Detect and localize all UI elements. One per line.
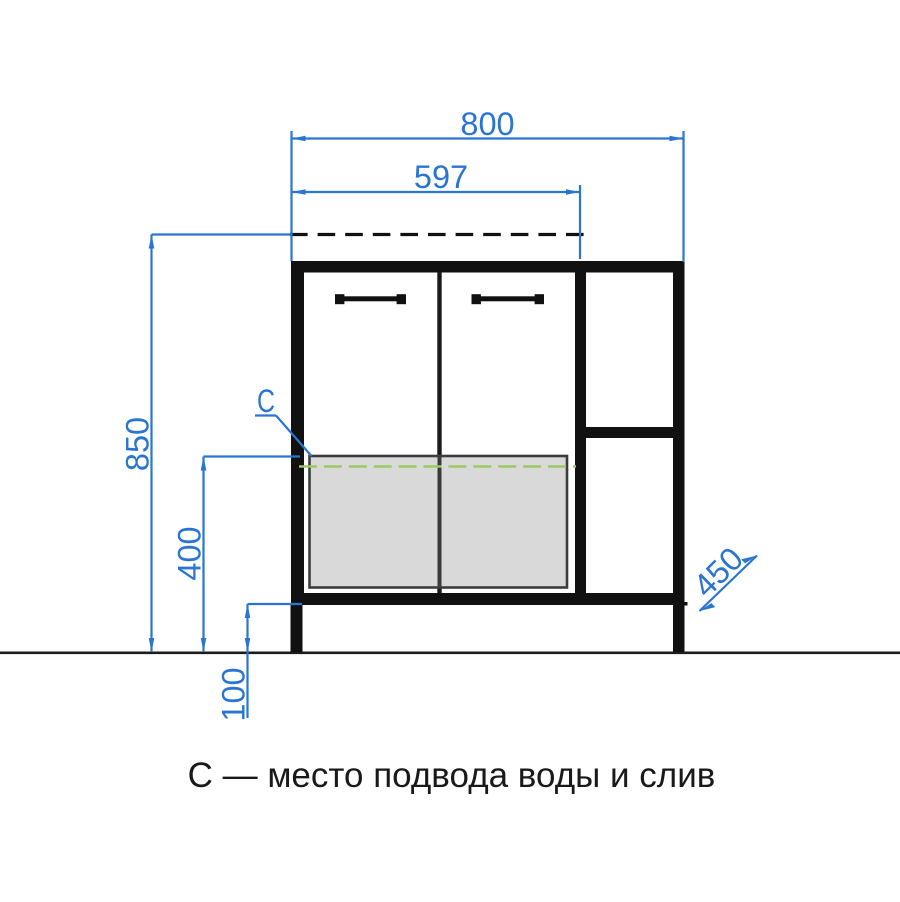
svg-text:800: 800	[460, 106, 514, 142]
svg-text:100: 100	[216, 667, 252, 721]
svg-text:597: 597	[414, 159, 468, 195]
svg-text:400: 400	[172, 526, 208, 580]
svg-text:С — место подвода воды и слив: С — место подвода воды и слив	[188, 756, 716, 795]
svg-text:850: 850	[120, 417, 156, 471]
svg-text:C: C	[257, 383, 275, 419]
